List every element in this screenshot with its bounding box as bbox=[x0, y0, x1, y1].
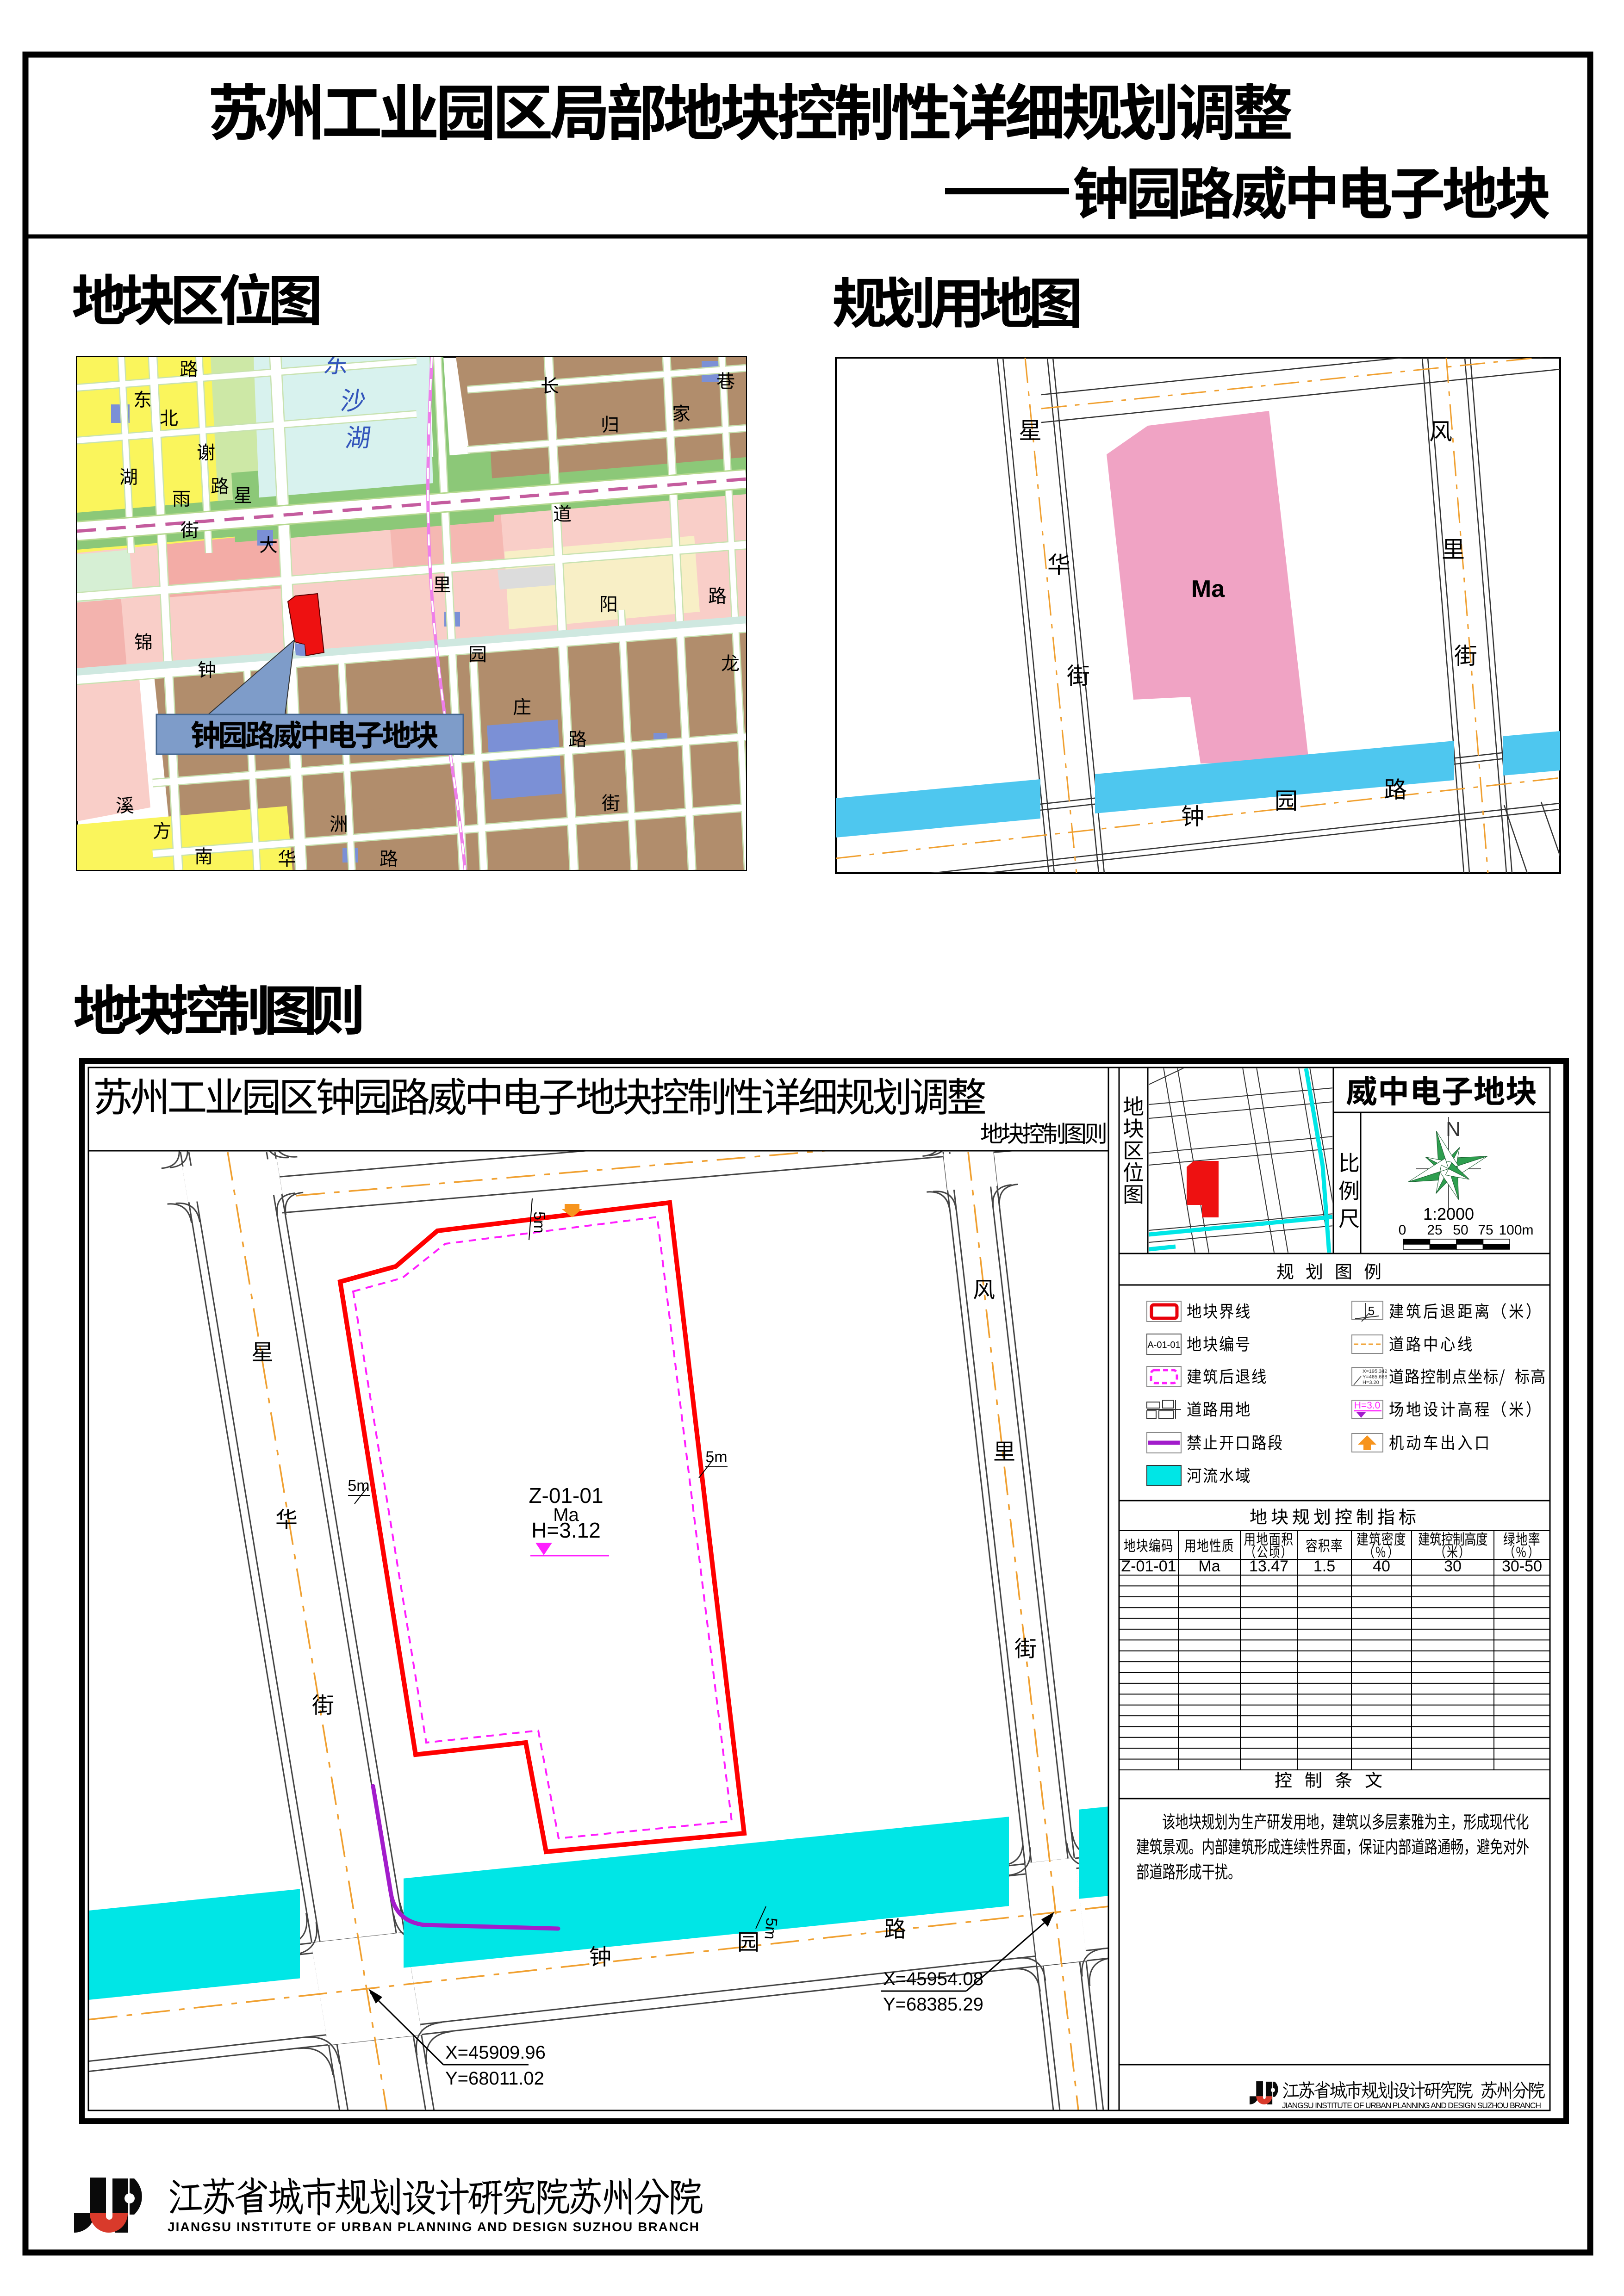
svg-text:H=3.12: H=3.12 bbox=[531, 1518, 601, 1542]
svg-text:0: 0 bbox=[1399, 1222, 1406, 1238]
svg-text:40: 40 bbox=[1373, 1558, 1390, 1575]
svg-text:100m: 100m bbox=[1499, 1222, 1533, 1238]
svg-text:Y=68385.29: Y=68385.29 bbox=[883, 1994, 983, 2015]
svg-text:5m: 5m bbox=[761, 1917, 780, 1940]
svg-text:1:2000: 1:2000 bbox=[1423, 1204, 1474, 1223]
svg-text:Y=465.668: Y=465.668 bbox=[1363, 1374, 1388, 1380]
svg-text:5m: 5m bbox=[530, 1211, 548, 1233]
svg-text:75: 75 bbox=[1478, 1222, 1493, 1238]
svg-text:N: N bbox=[1446, 1118, 1461, 1141]
svg-text:50: 50 bbox=[1453, 1222, 1468, 1238]
svg-text:H=3.0: H=3.0 bbox=[1354, 1400, 1381, 1411]
svg-text:Z-01-01: Z-01-01 bbox=[1121, 1558, 1176, 1575]
svg-text:Z-01-01: Z-01-01 bbox=[529, 1483, 603, 1508]
svg-text:JIANGSU INSTITUTE OF URBAN PLA: JIANGSU INSTITUTE OF URBAN PLANNING AND … bbox=[168, 2220, 699, 2234]
svg-text:Ma: Ma bbox=[1198, 1558, 1220, 1575]
svg-text:25: 25 bbox=[1427, 1222, 1442, 1238]
svg-text:Ma: Ma bbox=[1191, 576, 1225, 602]
svg-text:H=3.20: H=3.20 bbox=[1363, 1380, 1379, 1385]
svg-text:X=195.342: X=195.342 bbox=[1363, 1369, 1388, 1374]
svg-text:1.5: 1.5 bbox=[1313, 1558, 1335, 1575]
svg-text:Y=68011.02: Y=68011.02 bbox=[445, 2068, 544, 2089]
svg-text:A-01-01: A-01-01 bbox=[1147, 1340, 1180, 1350]
svg-text:JIANGSU INSTITUTE OF URBAN PLA: JIANGSU INSTITUTE OF URBAN PLANNING AND … bbox=[1282, 2101, 1541, 2110]
svg-text:30: 30 bbox=[1444, 1558, 1462, 1575]
svg-text:5: 5 bbox=[1368, 1304, 1375, 1318]
svg-text:X=45909.96: X=45909.96 bbox=[445, 2042, 546, 2063]
svg-text:X=45954.08: X=45954.08 bbox=[883, 1969, 983, 1989]
svg-text:5m: 5m bbox=[705, 1448, 727, 1466]
svg-text:5m: 5m bbox=[348, 1477, 369, 1495]
svg-text:30-50: 30-50 bbox=[1502, 1558, 1542, 1575]
svg-text:13.47: 13.47 bbox=[1249, 1558, 1288, 1575]
